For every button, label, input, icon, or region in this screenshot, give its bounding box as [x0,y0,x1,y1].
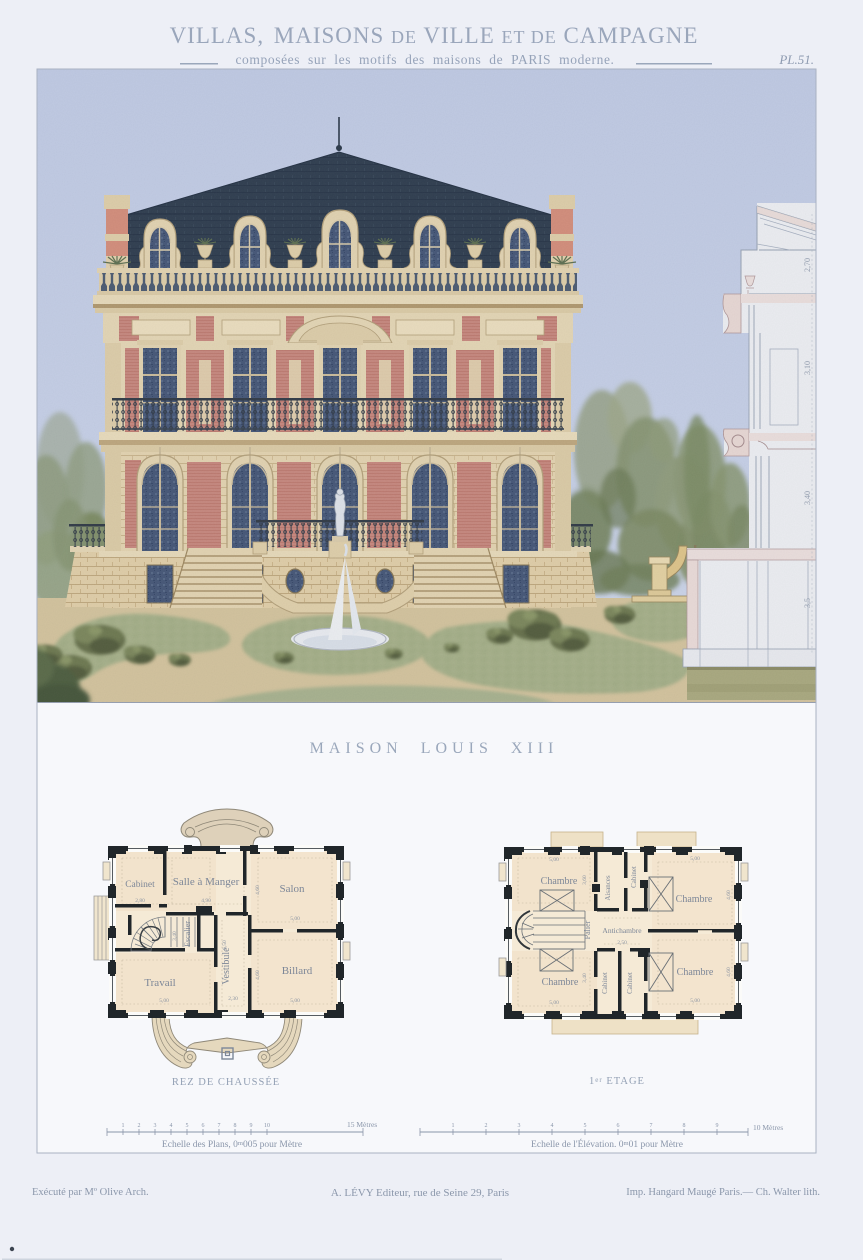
svg-text:4,60: 4,60 [726,890,732,900]
svg-text:Palier: Palier [583,920,592,939]
svg-text:1: 1 [122,1123,125,1129]
svg-text:5,00: 5,00 [159,998,169,1004]
svg-text:5,00: 5,00 [549,1000,559,1006]
svg-text:5: 5 [584,1123,587,1129]
svg-text:3: 3 [518,1123,521,1129]
svg-text:Salle à Manger: Salle à Manger [173,876,240,888]
svg-text:4,60: 4,60 [255,885,261,895]
svg-text:5,00: 5,00 [690,856,700,862]
svg-text:10 Mètres: 10 Mètres [753,1123,783,1132]
svg-text:8: 8 [234,1123,237,1129]
svg-text:Aisances: Aisances [604,875,612,901]
svg-text:VILLAS, MAISONS DE VILLE ET D: VILLAS, MAISONS DE VILLE ET DE CAMPAGNE [170,23,699,48]
svg-text:A. LÉVY Editeur, rue de Seine: A. LÉVY Editeur, rue de Seine 29, Paris [331,1187,509,1199]
svg-text:4,90: 4,90 [201,898,211,904]
svg-text:Cabinet: Cabinet [125,880,155,890]
svg-text:3,40: 3,40 [582,973,588,983]
svg-text:7: 7 [650,1123,653,1129]
svg-text:Cabinet: Cabinet [601,972,609,994]
svg-text:3,40: 3,40 [172,931,178,941]
svg-text:9: 9 [250,1123,253,1129]
svg-text:Chambre: Chambre [676,894,713,905]
svg-text:Echelle de l'Élévation. 0m01 p: Echelle de l'Élévation. 0m01 pour Mètre [531,1138,683,1150]
svg-text:Echelle des Plans, 0m005 pour: Echelle des Plans, 0m005 pour Mètre [162,1140,302,1150]
svg-text:6: 6 [202,1123,205,1129]
svg-text:Chambre: Chambre [542,977,579,988]
svg-text:Vestibule: Vestibule [221,947,232,985]
svg-text:6,50: 6,50 [222,940,228,950]
svg-text:5,00: 5,00 [549,857,559,863]
svg-text:MAISON LOUIS XIII: MAISON LOUIS XIII [310,740,559,757]
svg-text:Chambre: Chambre [677,967,714,978]
svg-text:9: 9 [716,1123,719,1129]
svg-text:2,30: 2,30 [228,996,238,1002]
svg-text:5,00: 5,00 [290,998,300,1004]
svg-text:Cabinet: Cabinet [630,866,638,888]
svg-text:Antichambre: Antichambre [602,926,642,935]
svg-text:4,60: 4,60 [255,970,261,980]
svg-text:1: 1 [452,1123,455,1129]
svg-text:composées sur les motifs d: composées sur les motifs des maisons de … [235,52,614,67]
svg-text:Imp. Hangard Maugé Paris.— Ch.: Imp. Hangard Maugé Paris.— Ch. Walter li… [626,1187,820,1198]
svg-text:4: 4 [551,1123,554,1129]
svg-text:8: 8 [683,1123,686,1129]
svg-text:10: 10 [264,1123,270,1129]
svg-text:5,00: 5,00 [290,916,300,922]
svg-text:5: 5 [186,1123,189,1129]
svg-text:7: 7 [218,1123,221,1129]
svg-text:Salon: Salon [279,883,305,895]
svg-text:3,60: 3,60 [582,875,588,885]
svg-text:Exécuté par Mº Olive Arch.: Exécuté par Mº Olive Arch. [32,1187,149,1198]
svg-text:2,50: 2,50 [617,940,627,946]
svg-text:PL.51.: PL.51. [778,52,814,67]
svg-text:4: 4 [170,1123,173,1129]
svg-text:REZ DE CHAUSSÉE: REZ DE CHAUSSÉE [172,1076,280,1088]
svg-text:15 Mètres: 15 Mètres [347,1120,377,1129]
svg-text:3: 3 [154,1123,157,1129]
svg-text:Travail: Travail [144,977,175,989]
svg-text:Escalier: Escalier [183,921,192,947]
svg-text:2,80: 2,80 [135,898,145,904]
svg-text:Chambre: Chambre [541,876,578,887]
svg-text:4,60: 4,60 [726,967,732,977]
svg-text:Cabinet: Cabinet [626,972,634,994]
svg-text:2: 2 [485,1123,488,1129]
svg-text:6: 6 [617,1123,620,1129]
svg-text:5,00: 5,00 [690,998,700,1004]
svg-text:2: 2 [138,1123,141,1129]
svg-text:Billard: Billard [282,965,313,977]
